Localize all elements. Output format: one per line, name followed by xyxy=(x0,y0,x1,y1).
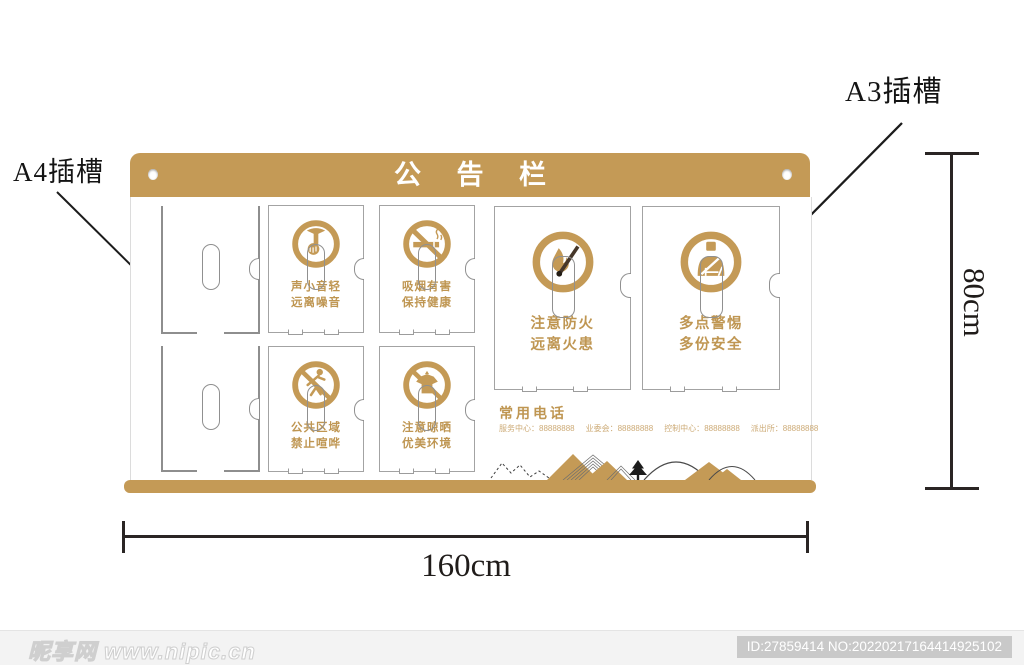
edge-notch xyxy=(249,258,259,280)
edge-notch xyxy=(620,273,631,298)
phone-label: 控制中心： xyxy=(664,424,704,433)
caption-line: 多份安全 xyxy=(679,335,743,356)
phone-entry: 服务中心：88888888 xyxy=(499,423,575,434)
bottom-tab xyxy=(288,468,303,474)
bottom-tab xyxy=(670,386,685,392)
board-title: 公 告 栏 xyxy=(130,153,810,197)
edge-notch xyxy=(769,273,780,298)
watermark-id-badge: ID:27859414 NO:20220217164414925102 xyxy=(737,636,1012,658)
phone-entry: 业委会：88888888 xyxy=(586,423,654,434)
phone-list: 服务中心：88888888 业委会：88888888 控制中心：88888888… xyxy=(499,423,818,434)
notice-card-quiet: 声小音轻 远离噪音 xyxy=(268,205,364,333)
bottom-tab xyxy=(522,386,537,392)
bottom-tab xyxy=(435,329,450,335)
watermark-bar: 昵享网 www.nipic.cn ID:27859414 NO:20220217… xyxy=(0,630,1024,665)
bottom-tab xyxy=(435,468,450,474)
edge-notch xyxy=(354,258,364,280)
phone-number: 88888888 xyxy=(539,424,575,433)
a4-empty-slot xyxy=(161,206,260,334)
design-canvas: A4插槽 A3插槽 公 告 栏 xyxy=(0,0,1024,665)
board-bottom-bar xyxy=(124,480,816,493)
thumb-cutout xyxy=(700,256,723,318)
phone-label: 业委会： xyxy=(586,424,618,433)
notice-card-no-smoking: 吸烟有害 保持健康 xyxy=(379,205,475,333)
caption-line: 远离火患 xyxy=(531,335,595,356)
a4-slot-label: A4插槽 xyxy=(13,150,104,189)
notice-card-theft: 多点警惕 多份安全 xyxy=(642,206,780,390)
thumb-cutout xyxy=(307,244,325,290)
edge-notch xyxy=(465,399,475,421)
card-caption: 注意防火 远离火患 xyxy=(531,314,595,356)
bottom-tab xyxy=(324,468,339,474)
phone-label: 派出所： xyxy=(751,424,783,433)
a3-slot-label: A3插槽 xyxy=(845,68,942,110)
height-dimension-line xyxy=(950,152,953,490)
dimension-cap xyxy=(925,487,979,490)
notice-card-fire: 注意防火 远离火患 xyxy=(494,206,631,390)
width-dimension-label: 160cm xyxy=(124,548,808,585)
phone-number: 88888888 xyxy=(618,424,654,433)
notice-card-no-drying: 注意晾晒 优美环境 xyxy=(379,346,475,472)
phone-section-title: 常用电话 xyxy=(499,403,567,423)
width-dimension-line xyxy=(124,535,808,538)
edge-notch xyxy=(354,399,364,421)
phone-label: 服务中心： xyxy=(499,424,539,433)
thumb-cutout xyxy=(202,244,220,290)
bottom-tab xyxy=(324,329,339,335)
card-caption: 多点警惕 多份安全 xyxy=(679,314,743,356)
bottom-tab xyxy=(722,386,737,392)
bottom-tab xyxy=(573,386,588,392)
caption-line: 禁止喧哗 xyxy=(291,436,341,452)
edge-notch xyxy=(465,258,475,280)
thumb-cutout xyxy=(202,384,220,430)
caption-line: 远离噪音 xyxy=(291,295,341,311)
board-header: 公 告 栏 xyxy=(130,153,810,197)
edge-notch xyxy=(249,398,259,420)
thumb-cutout xyxy=(418,385,436,431)
mounting-hole-icon xyxy=(148,169,158,180)
bottom-tab xyxy=(288,329,303,335)
phone-number: 88888888 xyxy=(704,424,740,433)
height-dimension-label: 80cm xyxy=(956,268,992,337)
thumb-cutout xyxy=(307,385,325,431)
dimension-cap xyxy=(925,152,979,155)
mounting-hole-icon xyxy=(782,169,792,180)
a4-empty-slot xyxy=(161,346,260,472)
bottom-tab xyxy=(399,329,414,335)
notice-card-no-clamor: 公共区域 禁止喧哗 xyxy=(268,346,364,472)
board-body: 声小音轻 远离噪音 吸烟有害 保持健康 xyxy=(130,197,812,480)
thumb-cutout xyxy=(552,256,575,318)
phone-entry: 派出所：88888888 xyxy=(751,423,819,434)
phone-entry: 控制中心：88888888 xyxy=(664,423,740,434)
bottom-tab xyxy=(399,468,414,474)
watermark-site-logo: 昵享网 www.nipic.cn xyxy=(28,634,256,665)
caption-line: 保持健康 xyxy=(402,295,452,311)
caption-line: 优美环境 xyxy=(402,436,452,452)
thumb-cutout xyxy=(418,244,436,290)
mountain-artwork-icon xyxy=(489,448,774,480)
phone-number: 88888888 xyxy=(783,424,819,433)
